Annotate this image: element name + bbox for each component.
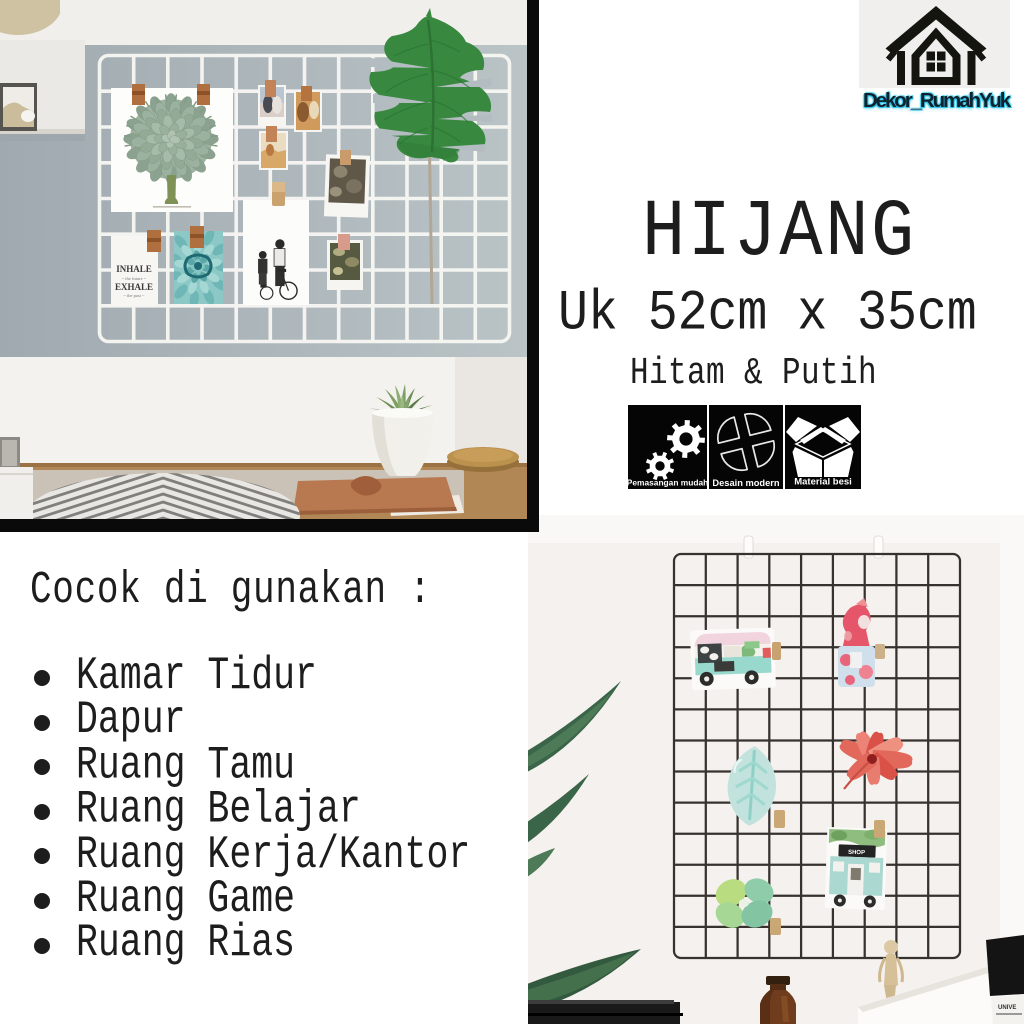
svg-text:EXHALE: EXHALE xyxy=(115,282,153,292)
svg-text:Pemasangan mudah: Pemasangan mudah xyxy=(628,478,707,488)
svg-text:~ the past ~: ~ the past ~ xyxy=(124,293,146,298)
svg-text:UNIVE: UNIVE xyxy=(998,1005,1016,1011)
svg-text:~ the future ~: ~ the future ~ xyxy=(122,276,147,281)
svg-text:INHALE: INHALE xyxy=(116,264,152,274)
svg-text:SHOP: SHOP xyxy=(848,850,865,857)
svg-text:Material besi: Material besi xyxy=(794,477,852,488)
svg-text:Desain modern: Desain modern xyxy=(712,478,779,488)
